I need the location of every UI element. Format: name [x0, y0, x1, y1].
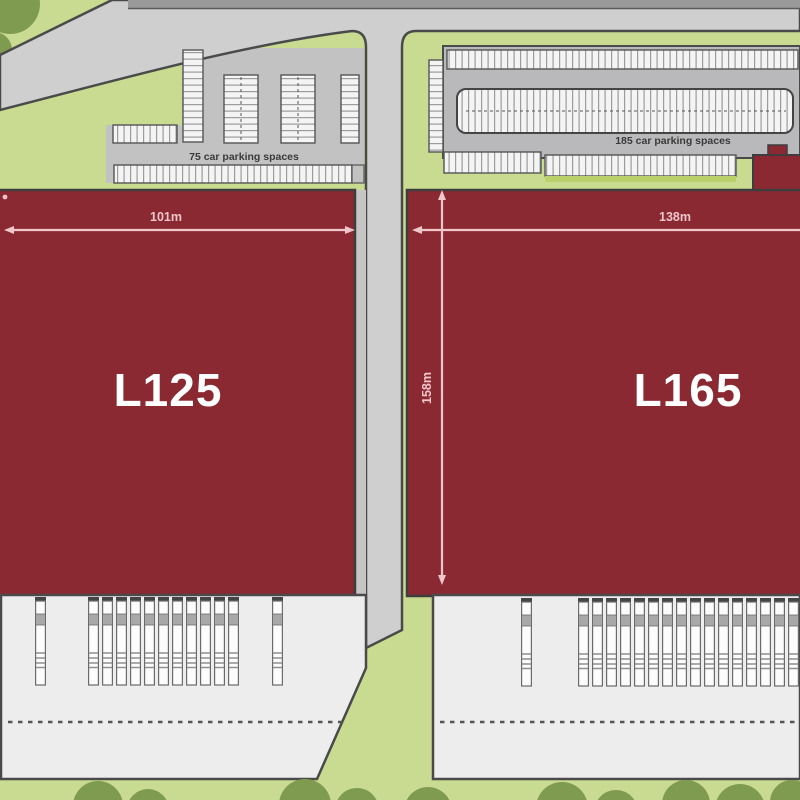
site-plan-canvas: 75 car parking spaces 185 car parking sp… [0, 0, 800, 800]
top-road-far-lane [128, 0, 800, 8]
parking-bay-row-bottom-a [444, 152, 541, 173]
parking-bay-column [341, 75, 359, 143]
building-l125-label: L125 [114, 364, 223, 416]
right-parking-label: 185 car parking spaces [615, 135, 731, 147]
left-parking-label: 75 car parking spaces [189, 151, 299, 163]
parking-bay-column [429, 60, 443, 152]
building-l165-label: L165 [634, 364, 743, 416]
parking-row-end [352, 165, 364, 183]
parking-bay-row [114, 165, 352, 183]
dimension-l165-depth-label: 158m [420, 372, 434, 404]
site-plan: 75 car parking spaces 185 car parking sp… [0, 0, 800, 800]
parking-bay-row-top [447, 50, 798, 69]
parking-bay-strip [113, 125, 177, 143]
parking-bay-column [183, 50, 203, 142]
building-l165-office-annex [753, 155, 800, 193]
yard-l125 [1, 595, 366, 779]
parking-hedge [545, 176, 736, 182]
dimension-l125-width-label: 101m [150, 210, 182, 224]
dimension-l165-width-label: 138m [659, 210, 691, 224]
parking-bay-row-bottom-b [545, 155, 736, 176]
